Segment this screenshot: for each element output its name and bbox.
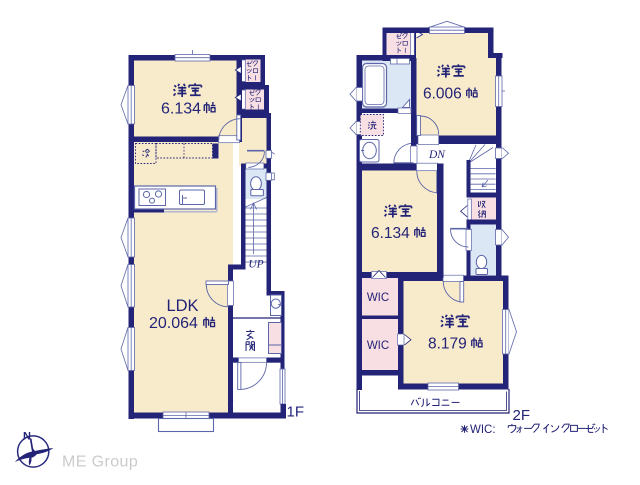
svg-text:UP: UP [248,259,263,271]
svg-text:WIC: WIC [367,292,389,304]
svg-text:LDK: LDK [166,297,198,315]
svg-text:6.006: 6.006 [423,85,462,102]
svg-text:8.179: 8.179 [428,335,467,352]
svg-text:6.134: 6.134 [161,100,201,117]
svg-text:1F: 1F [287,404,305,421]
svg-text:WIC:: WIC: [470,424,496,436]
svg-text:DN: DN [428,149,446,161]
svg-text:ME Group: ME Group [62,454,138,471]
svg-text:20.064: 20.064 [149,315,198,332]
svg-text:2F: 2F [513,407,531,424]
svg-text:WIC: WIC [367,340,389,352]
svg-text:6.134: 6.134 [371,225,410,242]
svg-text:N: N [23,431,31,443]
